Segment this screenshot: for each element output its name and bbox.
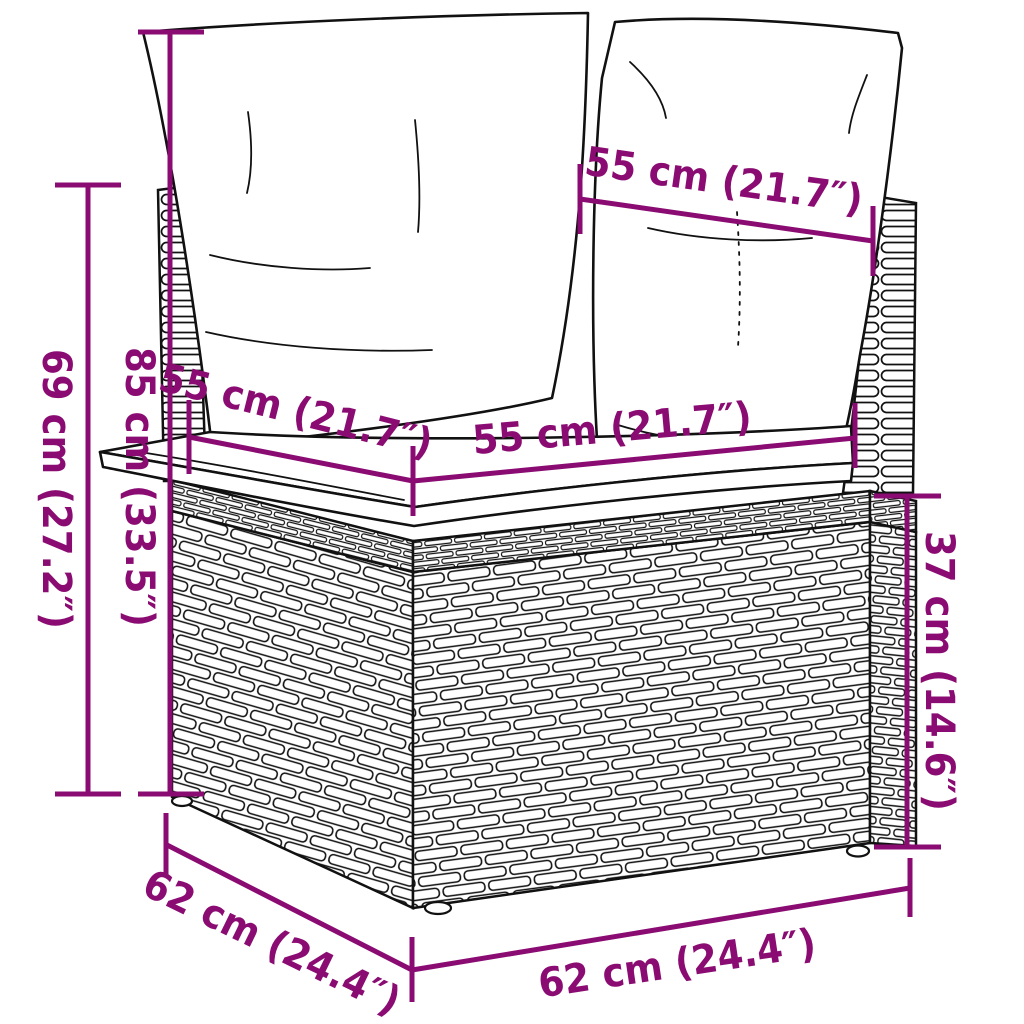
dimension-label-base-height: 37 cm (14.6″)	[916, 531, 962, 811]
base-left-face	[172, 511, 413, 908]
corner-sofa-diagram: 85 cm (33.5″) 69 cm (27.2″) 55 cm (21.7″…	[0, 0, 1024, 1024]
wicker-base	[172, 480, 916, 914]
dimension-label-height-with-cushion: 85 cm (33.5″)	[116, 347, 162, 627]
dimension-frame-height: 69 cm (27.2″)	[33, 185, 121, 794]
sofa-foot-front-left	[425, 902, 451, 914]
product-dimensions-diagram: 85 cm (33.5″) 69 cm (27.2″) 55 cm (21.7″…	[0, 0, 1024, 1024]
dimension-label-base-width: 62 cm (24.4″)	[535, 921, 819, 1008]
sofa-foot-front-right	[847, 846, 869, 857]
sofa-foot-back-left	[172, 796, 192, 806]
dimension-label-frame-height: 69 cm (27.2″)	[33, 349, 79, 629]
sofa-artwork	[100, 13, 916, 914]
base-front-face	[413, 522, 870, 908]
